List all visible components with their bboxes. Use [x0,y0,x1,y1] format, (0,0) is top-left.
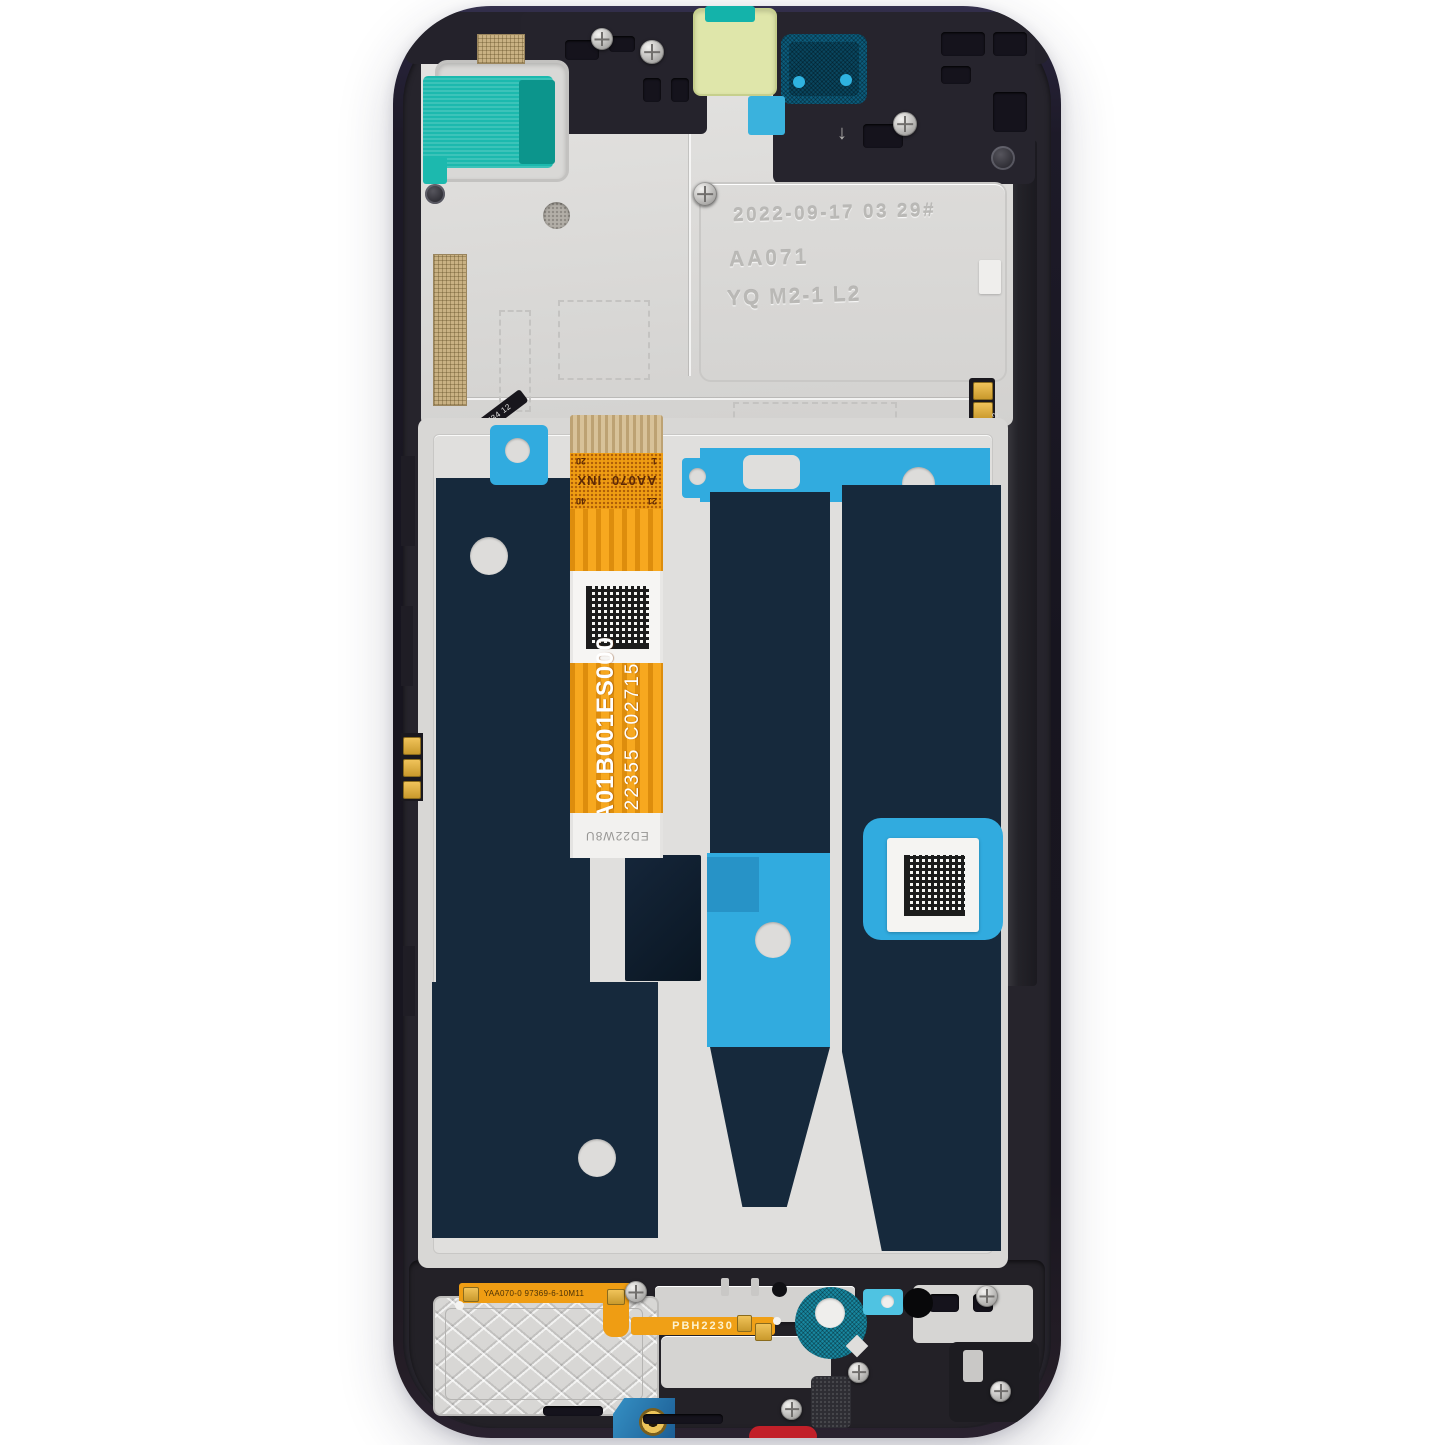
left-edge-component [403,946,415,1016]
frame-cutout [941,32,985,56]
frame-cutout [993,32,1027,56]
gold-contact [403,759,421,777]
silver-slot [963,1350,983,1382]
foam-pad [811,1376,851,1428]
gold-contact [463,1287,479,1302]
flex-lot-code: 22355 C02715 [622,662,644,811]
left-edge-component [401,606,413,686]
screw-hole [425,184,445,204]
cyan-overlay-tab [707,857,759,912]
frame-cutout [993,92,1027,132]
silver-prong [721,1278,729,1296]
screw [781,1399,802,1420]
flex-anchor-dot [773,1317,781,1325]
gold-contact [607,1289,625,1305]
gold-contact [403,737,421,755]
flex-printed-codes: 6A01B001ES000 22355 C02715 [570,641,666,831]
screw [625,1281,647,1303]
camera-hole [815,1298,845,1328]
gold-mesh-pad-top [477,34,525,64]
cyan-tab-top [748,96,785,135]
bottom-flex-left: YAA070-0 97369-6-10M11 [459,1283,609,1303]
frame-cutout [671,78,689,102]
mesh-hole-dot [840,74,852,86]
flex-connector [570,415,663,455]
navy-adhesive-left-lower [432,982,658,1238]
teal-strip-small [705,6,755,22]
flex-end-label-text: ED22W8U [585,829,649,843]
red-gasket [749,1426,817,1438]
silver-prong [751,1278,759,1296]
datamatrix-code [904,855,965,916]
frame-cutout [643,78,661,102]
gold-contact [737,1315,752,1332]
screw [990,1381,1011,1402]
flex-end-label: ED22W8U [570,813,663,858]
flex-pin-section: 21 40 AA070 -INX 1 20 [570,453,663,509]
frame-cutout [929,1294,959,1312]
adhesive-hole [578,1139,616,1177]
teal-sticker-tab [423,156,447,184]
adhesive-hole [505,438,530,463]
cyan-band-cutout [743,455,800,489]
navy-adhesive-center [710,492,830,855]
pin-number: 1 [652,456,657,466]
mic-mesh-hole [543,202,570,229]
flex-pin-printing: 21 40 AA070 -INX 1 20 [570,453,663,509]
phone-display-assembly: 2022-09-17 03 29# AA071 YQ M2-1 L2 ↓ XL-… [393,6,1061,1438]
engraved-arrow-icon: ↓ [837,122,847,145]
screw [591,28,613,50]
dashed-outline [558,300,650,380]
pin-number: 20 [576,456,586,466]
bottom-flex-left-label: YAA070-0 97369-6-10M11 [484,1289,585,1298]
adhesive-hole [689,468,706,485]
flex-anchor-dot [455,1301,464,1310]
gold-mesh-pad-left [433,254,467,406]
photo-canvas: 2022-09-17 03 29# AA071 YQ M2-1 L2 ↓ XL-… [0,0,1445,1445]
teal-sticker-dark-part [519,80,555,164]
screw [893,112,917,136]
frame-cutout [941,66,971,84]
left-edge-component [401,456,415,546]
bottom-flex-right: PBH2230 [631,1317,775,1335]
pin-row-1: 21 40 [576,496,657,506]
gold-contact [755,1323,772,1341]
hex-nut [991,146,1015,170]
mesh-hole-dot [793,76,805,88]
pin-row-2: 1 20 [576,456,657,466]
gold-contact [403,781,421,799]
pin-number: 40 [576,496,586,506]
screw [848,1362,869,1383]
adhesive-hole [755,922,791,958]
gold-contact [973,382,993,400]
adhesive-hole [881,1295,894,1308]
graphite-component-pad [625,855,701,981]
frame-cutout [543,1406,603,1416]
frame-cutout [643,1414,723,1424]
small-white-label [979,260,1001,294]
flex-ribbon-body [570,509,663,571]
pin-number: 21 [647,496,657,506]
screw-hole [772,1282,787,1297]
engraved-code-2: AA071 [729,244,870,273]
flex-connector-label: AA070 -INX [576,474,657,489]
screw [640,40,664,64]
black-port-hole [903,1288,933,1318]
adhesive-hole [470,537,508,575]
screw [976,1285,998,1307]
screw [693,182,717,206]
bottom-flex-right-label: PBH2230 [672,1320,734,1332]
flex-part-number: 6A01B001ES000 [592,636,620,836]
